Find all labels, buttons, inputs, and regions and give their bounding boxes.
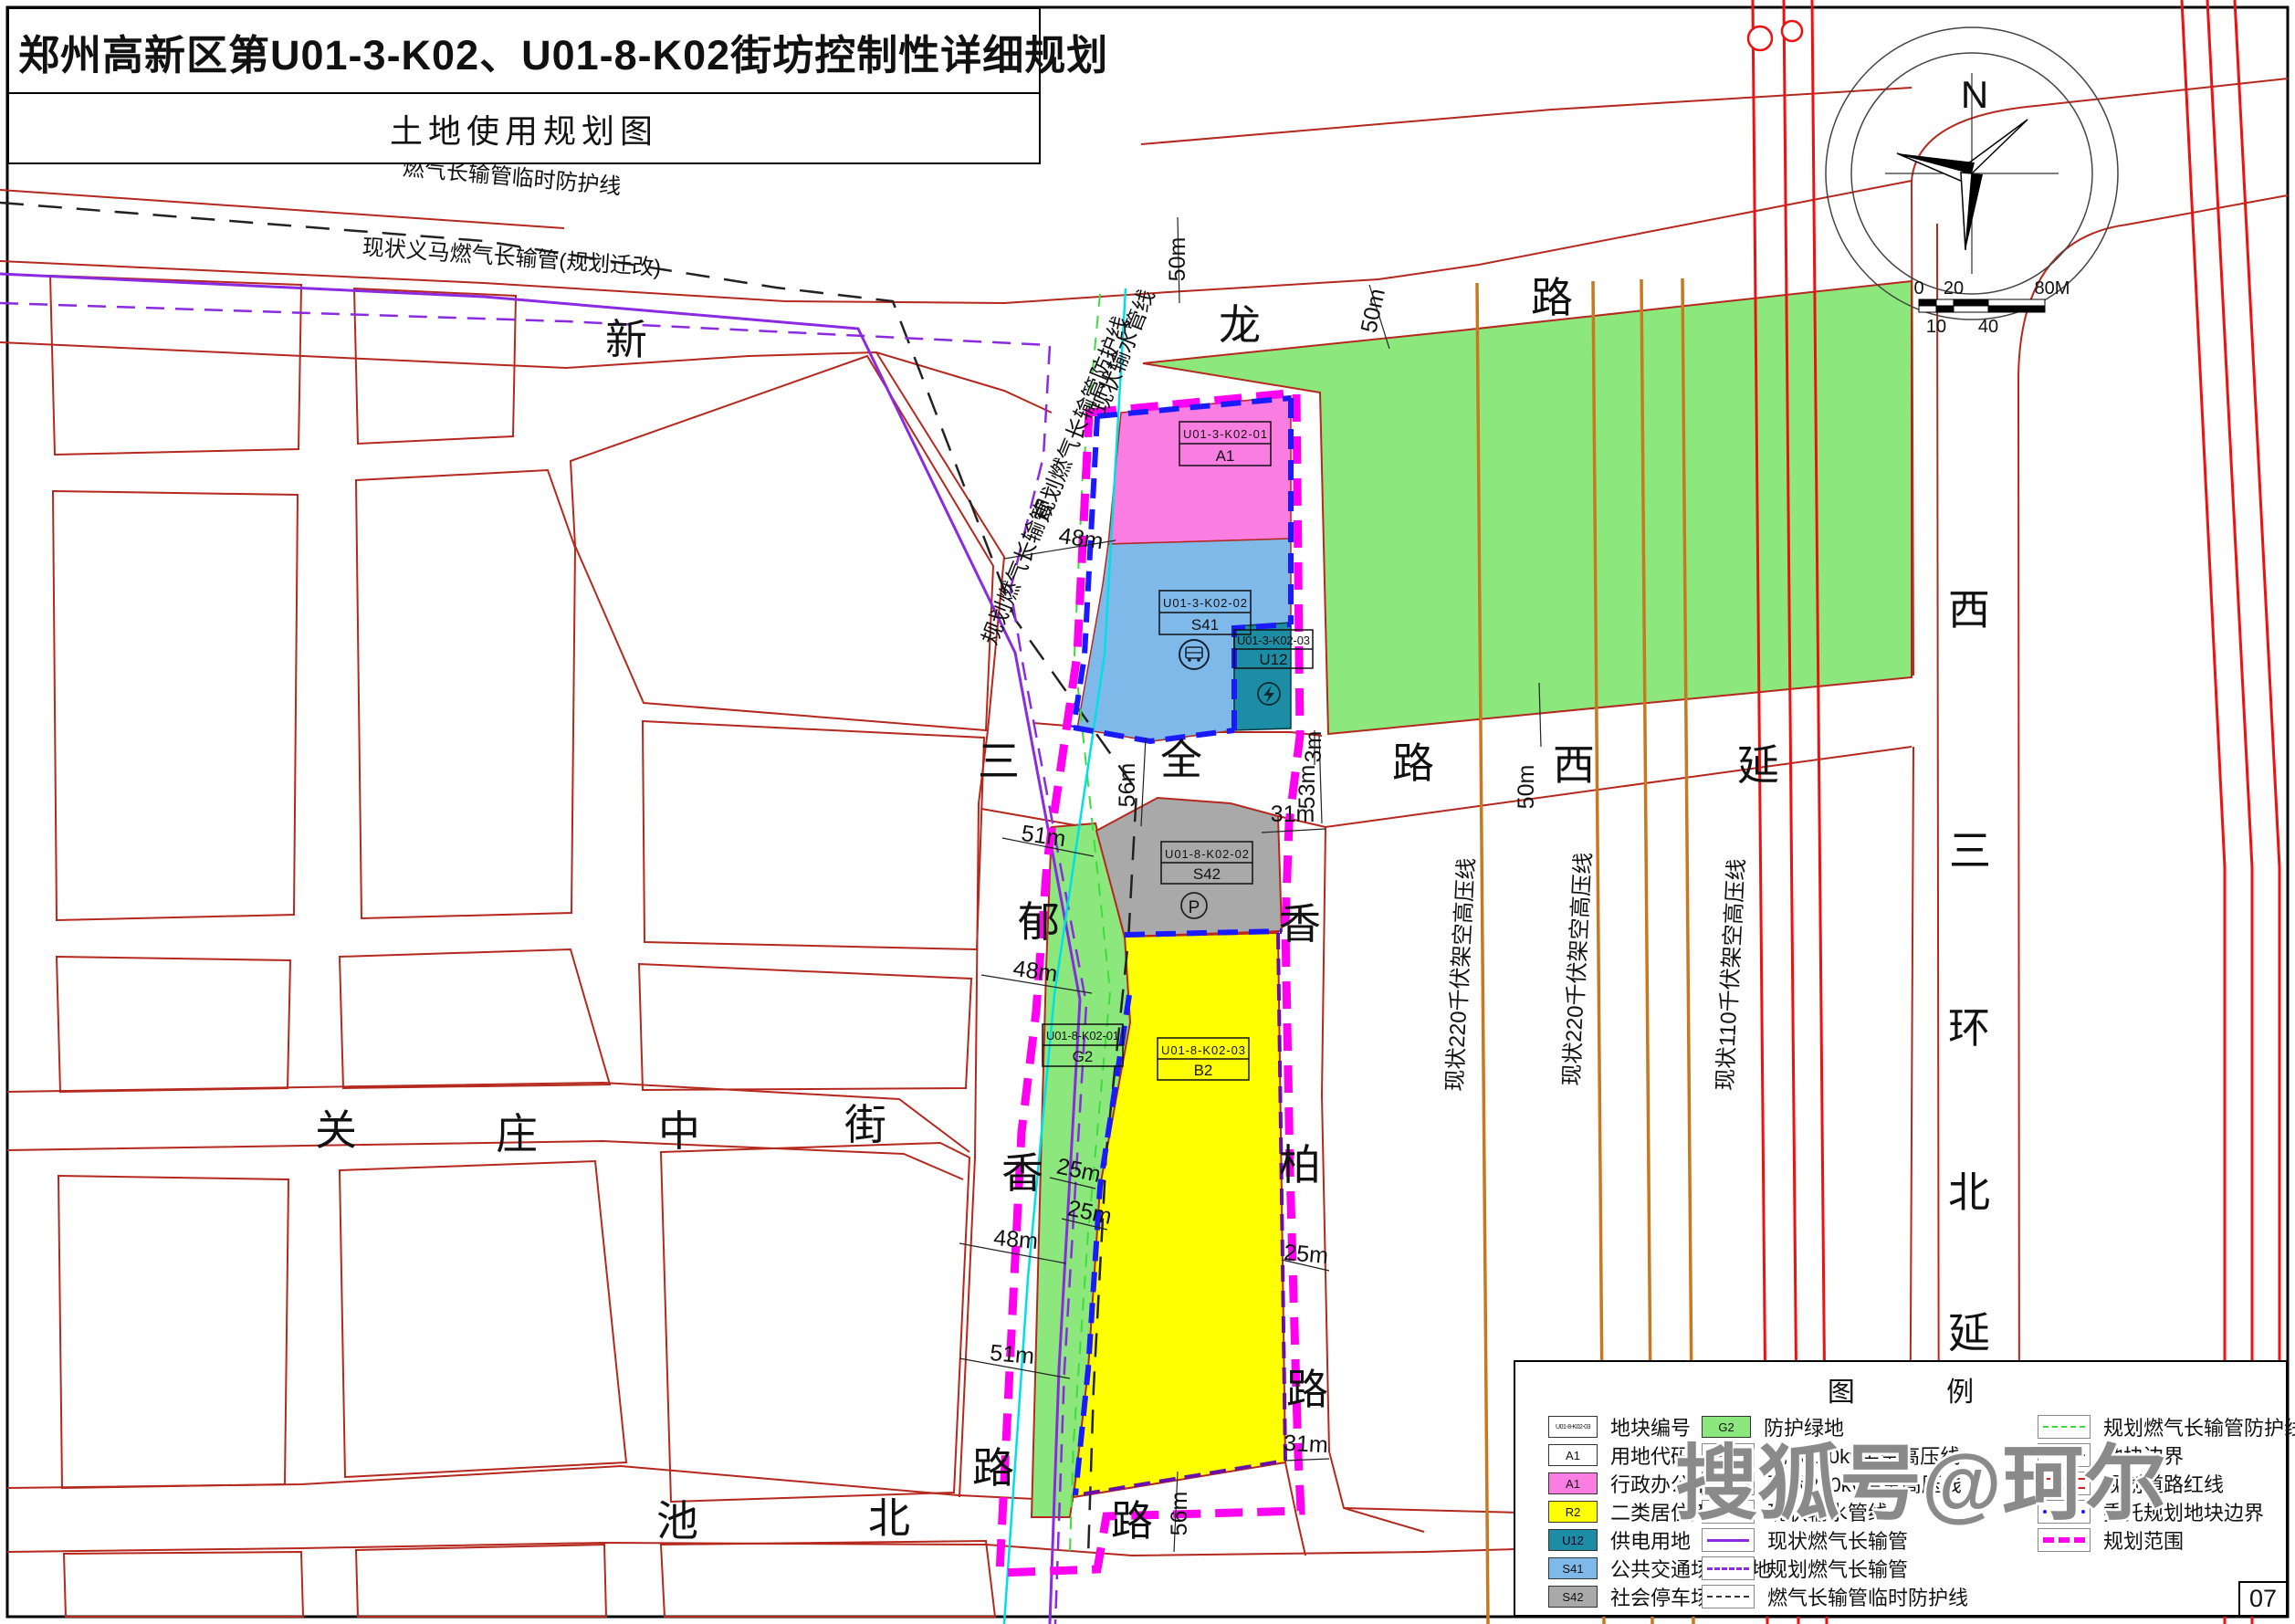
road-sanquan-char: 西 bbox=[1553, 741, 1595, 789]
dim-label: 48m bbox=[1011, 956, 1059, 987]
power-supply-swatch: U12 bbox=[1548, 1529, 1598, 1551]
compass-north-label: N bbox=[1961, 73, 1988, 116]
legend-label: 现状220kv架空高压线 bbox=[1767, 1469, 1962, 1498]
road-xinlong-char: 新 bbox=[605, 316, 647, 363]
road-chibei-char: 路 bbox=[1111, 1497, 1153, 1545]
legend-item: U01-8-K02-03 地块编号 bbox=[1548, 1413, 1691, 1441]
legend-item: 委托规划地块边界 bbox=[2038, 1498, 2264, 1525]
road-xisanhuan-char: 三 bbox=[1949, 827, 1991, 875]
legend-label: 委托规划地块边界 bbox=[2103, 1497, 2264, 1526]
power-pole-icon bbox=[1782, 21, 1802, 41]
hv110-label: 现状110千伏架空高压线 bbox=[1713, 858, 1749, 1091]
legend-label: 规划范围 bbox=[2103, 1525, 2184, 1555]
block-boundary-swatch bbox=[2038, 1443, 2091, 1467]
scale-tick: 40 bbox=[1978, 317, 1998, 337]
block-code: U01-3-K02-01 bbox=[1183, 427, 1267, 441]
road-xisanhuan-char: 环 bbox=[1948, 1004, 1990, 1052]
dim-label: 56m bbox=[1167, 1492, 1192, 1536]
dim-label: 48m bbox=[992, 1225, 1039, 1254]
dim-label: 31m bbox=[1283, 1430, 1328, 1459]
legend-label: 用地代码 bbox=[1610, 1441, 1691, 1470]
road-guanzhuang-char: 街 bbox=[844, 1101, 886, 1148]
road-guanzhuang-char: 关 bbox=[315, 1106, 357, 1154]
page-title: 郑州高新区第U01-3-K02、U01-8-K02街坊控制性详细规划 bbox=[9, 9, 1039, 81]
road-xinlong-char: 路 bbox=[1531, 274, 1573, 321]
legend-label: 现状输水管线 bbox=[1767, 1497, 1888, 1526]
road-xiangbai-char: 路 bbox=[1286, 1366, 1328, 1413]
hv110-swatch bbox=[1702, 1443, 1755, 1467]
road-xinlong-char: 龙 bbox=[1219, 301, 1261, 349]
legend-item: 规划道路红线 bbox=[2038, 1470, 2224, 1497]
block-use-code: B2 bbox=[1194, 1062, 1213, 1079]
legend-label: 现状110kv架空高压线 bbox=[1767, 1441, 1960, 1470]
admin-office-swatch: A1 bbox=[1548, 1472, 1598, 1494]
hv220-label: 现状220千伏架空高压线 bbox=[1442, 857, 1479, 1092]
road-xiangbai-char: 柏 bbox=[1279, 1141, 1321, 1189]
scale-tick: 0 bbox=[1913, 278, 1923, 299]
road-guanzhuang-char: 中 bbox=[658, 1107, 700, 1155]
existing-gas-label: 现状义马燃气长输管(规划迁改) bbox=[362, 236, 662, 281]
dim-label: 25m bbox=[1283, 1240, 1329, 1269]
road-xisanhuan-char: 延 bbox=[1948, 1309, 1990, 1357]
transit-station-swatch: S41 bbox=[1548, 1557, 1598, 1579]
block-use-code: S41 bbox=[1191, 616, 1219, 634]
scale-tick: 20 bbox=[1944, 278, 1964, 299]
road-sanquan-char: 延 bbox=[1737, 741, 1779, 789]
legend-item: 地块边界 bbox=[2038, 1441, 2184, 1469]
dim-label: 51m bbox=[989, 1340, 1035, 1369]
title-block: 郑州高新区第U01-3-K02、U01-8-K02街坊控制性详细规划 土地使用规… bbox=[7, 7, 1041, 164]
road-yuxiang-char: 郁 bbox=[1018, 898, 1060, 946]
road-sanquan-char: 三 bbox=[978, 738, 1020, 785]
parking-swatch: S42 bbox=[1548, 1586, 1598, 1608]
block-use-code: G2 bbox=[1073, 1048, 1094, 1065]
page-number: 07 bbox=[2238, 1581, 2288, 1617]
legend-item: 现状110kv架空高压线 bbox=[1702, 1441, 1960, 1469]
road-xisanhuan-char: 西 bbox=[1948, 586, 1990, 634]
road-sanquan-char: 全 bbox=[1160, 736, 1202, 783]
block-use-code: U12 bbox=[1259, 651, 1287, 668]
legend-item: 规划燃气长输管防护线 bbox=[2038, 1413, 2295, 1441]
legend-label: 供电用地 bbox=[1610, 1525, 1691, 1555]
water-line-swatch bbox=[1702, 1500, 1755, 1524]
legend-item: G2 防护绿地 bbox=[1702, 1413, 1844, 1441]
dim-label: 48m bbox=[1057, 523, 1105, 554]
legend-label: 地块编号 bbox=[1610, 1412, 1691, 1441]
dim-label: 3m bbox=[1301, 731, 1326, 763]
block-use-code: A1 bbox=[1216, 447, 1235, 465]
legend-item: 现状220kv架空高压线 bbox=[1702, 1470, 1962, 1497]
road-chibei-char: 池 bbox=[656, 1497, 698, 1545]
use-code-swatch: A1 bbox=[1548, 1444, 1598, 1466]
legend-item: A1 用地代码 bbox=[1548, 1441, 1691, 1469]
entrusted-boundary-swatch bbox=[2038, 1500, 2091, 1524]
dim-label: 50m bbox=[1514, 765, 1539, 810]
dim-label: 50m bbox=[1356, 287, 1390, 335]
legend-item: 燃气长输管临时防护线 bbox=[1702, 1583, 1968, 1610]
legend-title: 图 例 bbox=[1515, 1369, 2286, 1409]
block-code: U01-8-K02-02 bbox=[1165, 847, 1249, 861]
road-guanzhuang-char: 庄 bbox=[496, 1110, 538, 1158]
gas-temp-protect-swatch bbox=[1702, 1585, 1755, 1608]
planned-gas-swatch bbox=[1702, 1556, 1755, 1580]
legend-label: 规划燃气长输管防护线 bbox=[2103, 1412, 2295, 1441]
legend-item: 规划范围 bbox=[2038, 1526, 2184, 1554]
planned-gas-line bbox=[0, 303, 1086, 1624]
road-yuxiang-char: 路 bbox=[972, 1444, 1014, 1492]
legend-panel: 图 例 U01-8-K02-03 地块编号 A1 用地代码 A1 行政办公用地 … bbox=[1514, 1360, 2288, 1617]
compass-rose: N bbox=[1826, 27, 2118, 320]
road-yuxiang-char: 香 bbox=[1001, 1149, 1043, 1197]
legend-label: 规划道路红线 bbox=[2103, 1469, 2224, 1498]
block-a1-admin bbox=[1108, 396, 1291, 544]
road-redline-swatch bbox=[2038, 1472, 2091, 1495]
road-chibei-char: 北 bbox=[868, 1494, 910, 1542]
dim-label: 56m bbox=[1115, 763, 1140, 808]
existing-gas-swatch bbox=[1702, 1528, 1755, 1552]
legend-item: 现状输水管线 bbox=[1702, 1498, 1888, 1525]
title-divider bbox=[9, 92, 1039, 94]
scale-tick: 10 bbox=[1926, 317, 1946, 337]
legend-label: 地块边界 bbox=[2103, 1441, 2184, 1470]
compass-star bbox=[1897, 120, 2028, 250]
hv220-swatch bbox=[1702, 1472, 1755, 1495]
block-use-code: S42 bbox=[1193, 865, 1221, 883]
legend-item: U12 供电用地 bbox=[1548, 1526, 1691, 1554]
legend-item: 规划燃气长输管 bbox=[1702, 1555, 1908, 1582]
legend-label: 防护绿地 bbox=[1764, 1412, 1844, 1441]
planning-map-page: U01-3-K02-01 A1 U01-3-K02-02 S41 U01-3-K… bbox=[0, 0, 2295, 1624]
dim-label: 31m bbox=[1271, 802, 1315, 827]
page-subtitle: 土地使用规划图 bbox=[9, 105, 1039, 152]
residential-swatch: R2 bbox=[1548, 1501, 1598, 1523]
road-xisanhuan-char: 北 bbox=[1948, 1168, 1990, 1216]
block-code: U01-8-K02-01 bbox=[1046, 1029, 1119, 1043]
scale-tick: 80M bbox=[2035, 278, 2070, 299]
legend-label: 规划燃气长输管 bbox=[1767, 1554, 1908, 1583]
svg-text:P: P bbox=[1189, 898, 1200, 917]
planned-gas-protect-swatch bbox=[2038, 1415, 2091, 1439]
block-code: U01-3-K02-02 bbox=[1163, 596, 1247, 610]
block-code: U01-8-K02-03 bbox=[1161, 1043, 1245, 1057]
dim-label: 50m bbox=[1165, 237, 1190, 282]
road-xiangbai-char: 香 bbox=[1279, 900, 1321, 948]
legend-label: 现状燃气长输管 bbox=[1767, 1525, 1908, 1555]
hv220-label: 现状220千伏架空高压线 bbox=[1559, 852, 1596, 1086]
planning-scope-swatch bbox=[2038, 1528, 2091, 1552]
road-sanquan-char: 路 bbox=[1392, 739, 1434, 787]
block-code-swatch: U01-8-K02-03 bbox=[1548, 1416, 1598, 1438]
block-code: U01-3-K02-03 bbox=[1237, 634, 1310, 647]
legend-label: 燃气长输管临时防护线 bbox=[1767, 1582, 1968, 1611]
power-pole-icon bbox=[1748, 26, 1772, 50]
dim-label: 51m bbox=[1020, 821, 1067, 852]
green-space-swatch: G2 bbox=[1702, 1416, 1751, 1438]
legend-item: 现状燃气长输管 bbox=[1702, 1526, 1908, 1554]
